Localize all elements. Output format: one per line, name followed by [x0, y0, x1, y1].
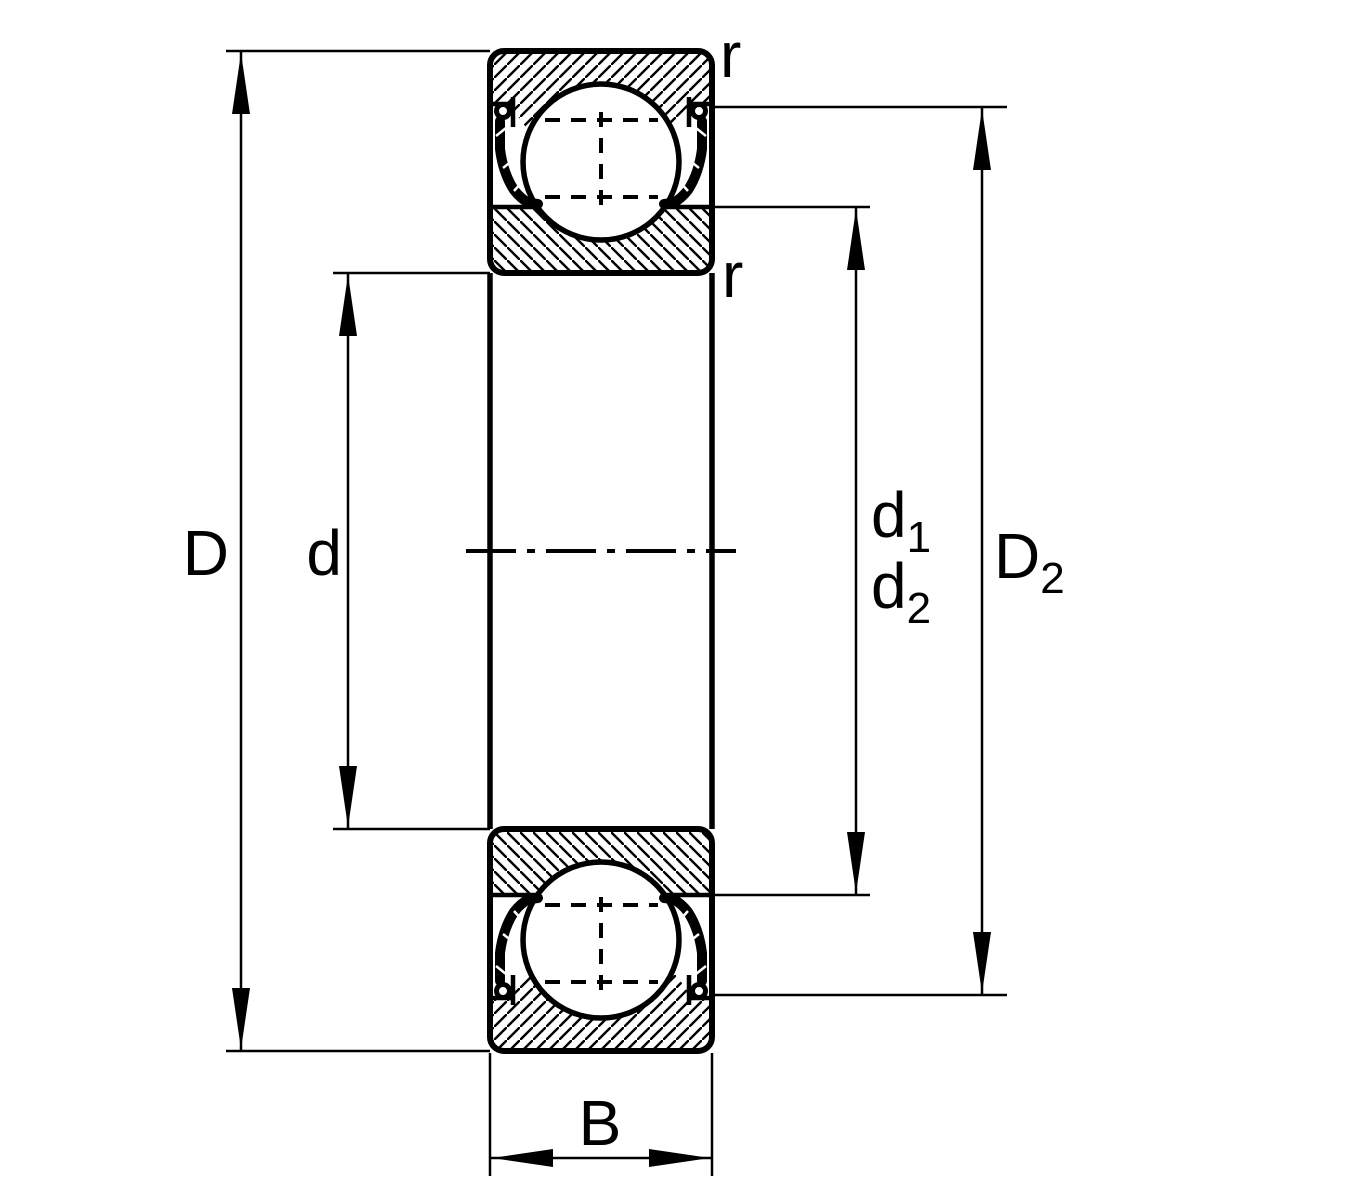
shield-anchor-right-top — [693, 105, 706, 118]
arrowhead-B-right — [649, 1149, 710, 1167]
label-D2-base: D — [994, 520, 1040, 592]
bearing-dimension-drawing: D d d1 d2 D2 B r r — [0, 0, 1350, 1200]
arrowhead-d1-d2-top — [847, 209, 865, 270]
arrowhead-D-bottom — [232, 988, 250, 1049]
bearing-section-bottom — [490, 829, 712, 1051]
arrowhead-d-bottom — [339, 766, 357, 827]
label-D2: D2 — [994, 520, 1065, 603]
label-r-bottom: r — [722, 239, 743, 311]
label-d2: d2 — [871, 550, 931, 633]
label-D: D — [183, 517, 229, 589]
label-B: B — [579, 1087, 622, 1159]
arrowhead-d-top — [339, 275, 357, 336]
label-r-top: r — [720, 19, 741, 91]
bearing-section-top — [490, 51, 712, 273]
label-d2-base: d — [871, 550, 907, 622]
ball-top — [523, 84, 679, 240]
extension-lines-D — [226, 51, 490, 1051]
arrowhead-D-top — [232, 53, 250, 114]
shield-anchor-left-top — [497, 105, 510, 118]
bore-lines — [490, 273, 712, 829]
bearing-diagram-svg: D d d1 d2 D2 B r r — [0, 0, 1350, 1200]
label-d2-subscript: 2 — [907, 584, 931, 633]
dimension-d1-d2: d1 d2 — [712, 207, 931, 895]
dimension-B: B — [490, 1053, 712, 1176]
shield-anchor-left-bottom — [497, 985, 510, 998]
label-d1-base: d — [871, 479, 907, 551]
shield-anchor-right-bottom — [693, 985, 706, 998]
ball-bottom — [523, 862, 679, 1018]
label-d1-subscript: 1 — [907, 513, 931, 562]
label-D2-subscript: 2 — [1040, 554, 1064, 603]
arrowhead-B-left — [492, 1149, 553, 1167]
label-d: d — [306, 517, 342, 589]
arrowhead-D2-top — [973, 109, 991, 170]
arrowhead-d1-d2-bottom — [847, 832, 865, 893]
dimension-d: d — [306, 273, 490, 829]
arrowhead-D2-bottom — [973, 932, 991, 993]
